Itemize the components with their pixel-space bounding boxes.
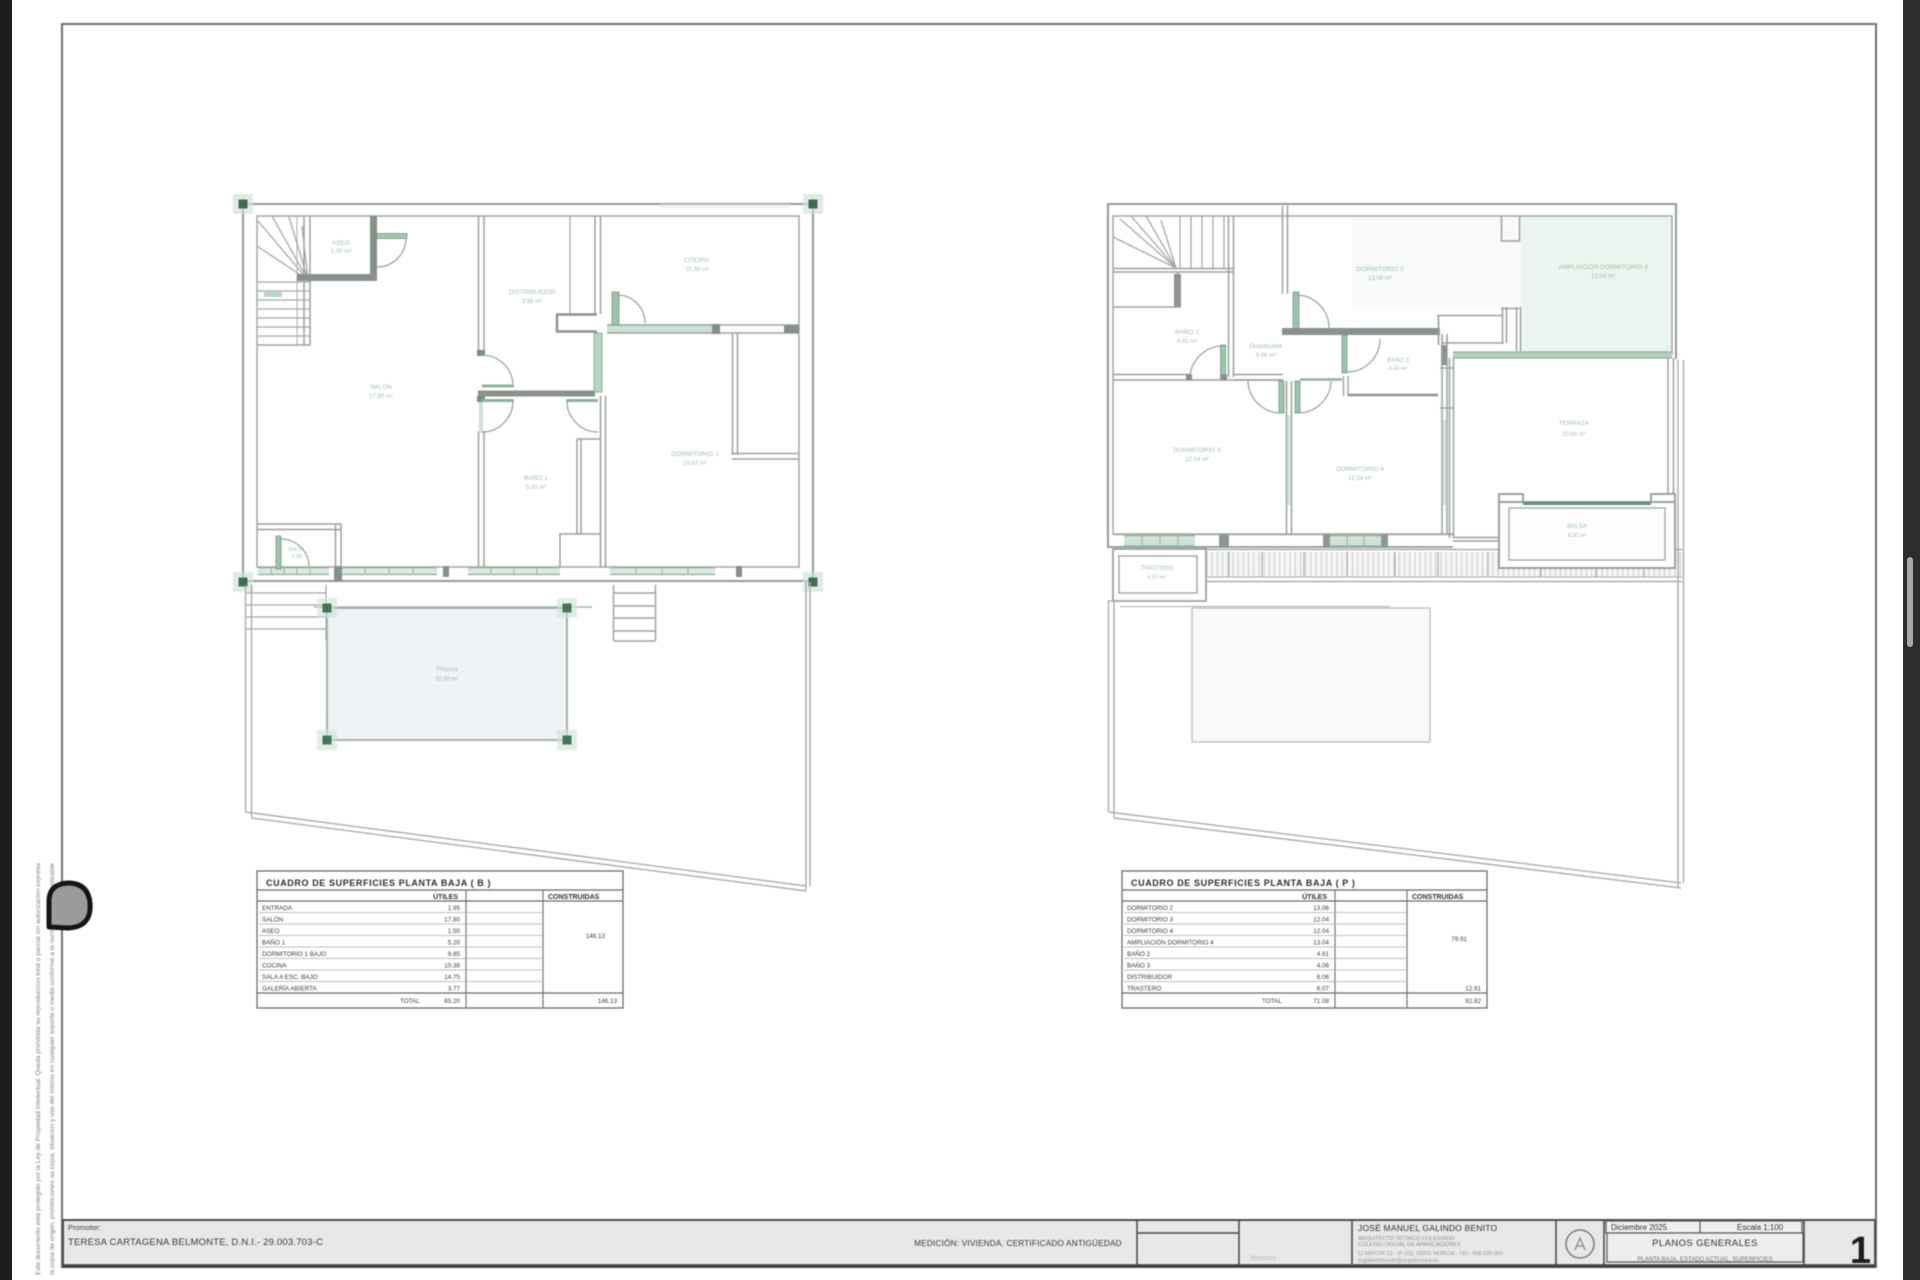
svg-text:TRASTERO: TRASTERO — [1141, 566, 1174, 572]
svg-text:30.00 m²: 30.00 m² — [435, 677, 459, 683]
svg-text:6.06: 6.06 — [1317, 974, 1330, 981]
svg-text:13.06: 13.06 — [1313, 905, 1329, 912]
svg-text:1.50 m²: 1.50 m² — [331, 249, 351, 255]
svg-text:MEDICIÓN: VIVIENDA. CERTIFICAD: MEDICIÓN: VIVIENDA. CERTIFICADO ANTIGÜED… — [914, 1238, 1122, 1248]
svg-text:DORMITORIO 2: DORMITORIO 2 — [1127, 905, 1174, 912]
svg-text:ASEO: ASEO — [332, 240, 350, 247]
svg-text:1: 1 — [1850, 1230, 1871, 1272]
svg-text:146.13: 146.13 — [598, 998, 618, 1005]
svg-text:3.77: 3.77 — [448, 986, 461, 993]
svg-text:Promotor:: Promotor: — [68, 1223, 101, 1232]
svg-text:3.98 m²: 3.98 m² — [522, 299, 542, 305]
svg-text:12.04: 12.04 — [1313, 928, 1329, 935]
svg-text:CONSTRUIDAS: CONSTRUIDAS — [548, 894, 600, 901]
svg-text:DORMITORIO 3: DORMITORIO 3 — [1173, 447, 1221, 454]
svg-text:6.07 m²: 6.07 m² — [1148, 575, 1167, 581]
svg-text:71.08: 71.08 — [1313, 998, 1329, 1005]
svg-text:4.06 m²: 4.06 m² — [1389, 366, 1408, 372]
svg-text:12.04: 12.04 — [1313, 917, 1329, 924]
svg-text:4.06: 4.06 — [1317, 963, 1330, 970]
svg-text:10.38: 10.38 — [444, 963, 460, 970]
svg-text:Escala 1:100: Escala 1:100 — [1737, 1223, 1784, 1232]
svg-text:92.82: 92.82 — [1465, 998, 1481, 1005]
svg-text:ÚTILES: ÚTILES — [1302, 892, 1327, 901]
svg-text:5.20: 5.20 — [448, 940, 461, 947]
svg-text:9.85: 9.85 — [448, 951, 461, 958]
svg-text:DORMITORIO 4: DORMITORIO 4 — [1127, 928, 1174, 935]
svg-text:146.13: 146.13 — [586, 933, 606, 940]
svg-text:79.91: 79.91 — [1451, 936, 1467, 943]
svg-text:BAÑO 2: BAÑO 2 — [1175, 327, 1199, 336]
svg-text:DORMITORIO 1: DORMITORIO 1 — [671, 451, 719, 458]
svg-text:DORMITORIO 2: DORMITORIO 2 — [1356, 266, 1404, 273]
svg-text:BAÑO 2: BAÑO 2 — [1127, 949, 1151, 958]
svg-text:17.80: 17.80 — [444, 917, 460, 924]
svg-text:13.04 m²: 13.04 m² — [1591, 274, 1615, 280]
svg-text:DORMITORIO 3: DORMITORIO 3 — [1127, 917, 1174, 924]
svg-text:CUADRO DE SUPERFICIES PLANTA B: CUADRO DE SUPERFICIES PLANTA BAJA ( B ) — [266, 878, 491, 888]
svg-text:TOTAL: TOTAL — [1262, 998, 1282, 1005]
svg-text:COCINA: COCINA — [684, 257, 710, 264]
svg-text:CUADRO DE SUPERFICIES PLANTA B: CUADRO DE SUPERFICIES PLANTA BAJA ( P ) — [1131, 878, 1355, 888]
svg-text:8.90 m²: 8.90 m² — [1568, 533, 1587, 539]
svg-text:JOSÉ MANUEL GALINDO BENITO: JOSÉ MANUEL GALINDO BENITO — [1358, 1223, 1498, 1233]
svg-text:13.04: 13.04 — [1313, 940, 1329, 947]
svg-text:C/ MAYOR 12 - 3º IZQ. 30002 MU: C/ MAYOR 12 - 3º IZQ. 30002 MURCIA - TEL… — [1358, 1250, 1503, 1257]
svg-text:DORMITORIO 4: DORMITORIO 4 — [1336, 466, 1384, 473]
svg-text:BAÑO 1: BAÑO 1 — [262, 938, 286, 947]
svg-text:Piscina: Piscina — [437, 666, 458, 673]
svg-text:TERESA CARTAGENA BELMONTE, D.N: TERESA CARTAGENA BELMONTE, D.N.I.- 29.00… — [68, 1237, 323, 1248]
svg-text:jmgalindobenito@arquitectura.e: jmgalindobenito@arquitectura.es — [1357, 1258, 1439, 1264]
svg-text:DISTRIBUIDOR: DISTRIBUIDOR — [509, 289, 556, 296]
svg-text:BALSA: BALSA — [1567, 524, 1586, 530]
svg-text:BAÑO 3: BAÑO 3 — [1387, 357, 1410, 364]
svg-text:ÚTILES: ÚTILES — [433, 892, 458, 901]
svg-text:6.06 m²: 6.06 m² — [1256, 353, 1276, 359]
svg-text:CONSTRUIDAS: CONSTRUIDAS — [1412, 894, 1464, 901]
svg-text:10.97 m²: 10.97 m² — [683, 461, 707, 467]
svg-text:12.04 m²: 12.04 m² — [1348, 476, 1372, 482]
svg-text:SALÓN: SALÓN — [262, 915, 284, 924]
svg-text:PLANTA BAJA. ESTADO ACTUAL. SU: PLANTA BAJA. ESTADO ACTUAL. SUPERFICIES — [1637, 1257, 1772, 1263]
svg-text:COLEGIO OFICIAL DE APAREJADORE: COLEGIO OFICIAL DE APAREJADORES — [1358, 1242, 1461, 1248]
svg-text:10.38 m²: 10.38 m² — [685, 267, 709, 273]
svg-text:ASEO: ASEO — [262, 928, 280, 935]
svg-text:Diciembre 2025: Diciembre 2025 — [1611, 1223, 1668, 1232]
svg-text:14.75: 14.75 — [444, 974, 460, 981]
svg-text:AMPLIACIÓN DORMITORIO 4: AMPLIACIÓN DORMITORIO 4 — [1558, 262, 1648, 271]
svg-text:6.07: 6.07 — [1317, 986, 1330, 993]
svg-text:SALÓN: SALÓN — [370, 382, 392, 391]
svg-text:ENTR.: ENTR. — [289, 547, 306, 553]
svg-text:COCINA: COCINA — [262, 963, 287, 970]
svg-text:5.20 m²: 5.20 m² — [526, 485, 546, 491]
svg-text:SALA A ESC. BAJO: SALA A ESC. BAJO — [262, 974, 318, 981]
svg-text:1.50: 1.50 — [448, 928, 461, 935]
svg-text:20.50 m²: 20.50 m² — [1562, 432, 1586, 438]
svg-text:TERRAZA: TERRAZA — [1559, 420, 1590, 427]
svg-text:4.81: 4.81 — [1317, 951, 1330, 958]
svg-text:DISTRIBUIDOR: DISTRIBUIDOR — [1127, 974, 1173, 981]
svg-text:TOTAL: TOTAL — [400, 998, 420, 1005]
svg-text:DORMITORIO 1 BAJO: DORMITORIO 1 BAJO — [262, 951, 326, 958]
svg-text:TRASTERO: TRASTERO — [1127, 986, 1161, 993]
svg-text:GALERÍA ABIERTA: GALERÍA ABIERTA — [262, 984, 318, 993]
svg-text:65.20: 65.20 — [444, 998, 460, 1005]
svg-text:12.04 m²: 12.04 m² — [1185, 457, 1209, 463]
svg-text:PLANOS GENERALES: PLANOS GENERALES — [1652, 1238, 1758, 1249]
svg-text:BAÑO 1: BAÑO 1 — [524, 473, 548, 482]
svg-text:1.95: 1.95 — [292, 554, 303, 560]
svg-text:ENTRADA: ENTRADA — [262, 905, 293, 912]
svg-text:Distribuidor: Distribuidor — [1250, 343, 1284, 350]
svg-text:12.91: 12.91 — [1465, 986, 1481, 993]
svg-text:Este documento esta protegido: Este documento esta protegido por la Ley… — [35, 863, 42, 1275]
svg-text:(firmado): (firmado) — [1250, 1255, 1276, 1262]
svg-text:BAÑO 3: BAÑO 3 — [1127, 961, 1151, 970]
svg-text:13.06 m²: 13.06 m² — [1368, 276, 1392, 282]
svg-text:4.81 m²: 4.81 m² — [1177, 339, 1197, 345]
svg-text:AMPLIACIÓN DORMITORIO 4: AMPLIACIÓN DORMITORIO 4 — [1127, 938, 1214, 947]
svg-text:1.95: 1.95 — [448, 905, 461, 912]
svg-text:17.80 m²: 17.80 m² — [369, 394, 393, 400]
